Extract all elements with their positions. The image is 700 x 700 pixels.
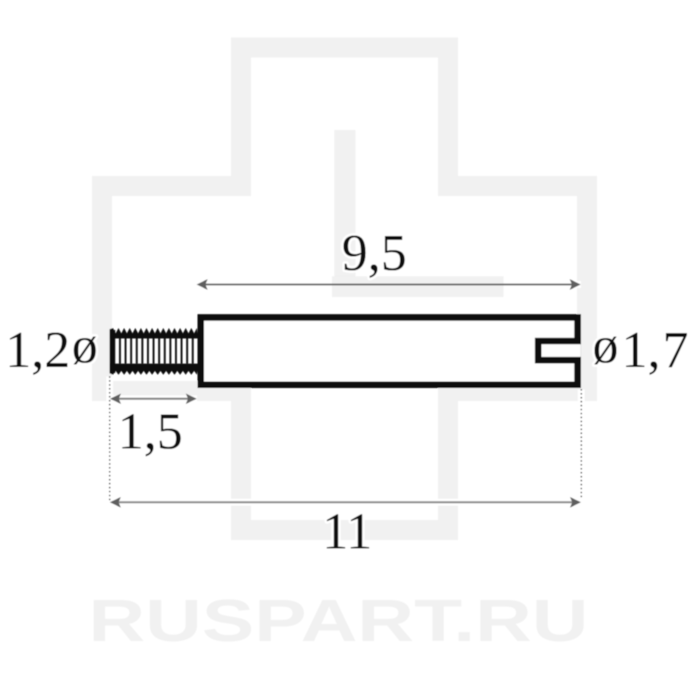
svg-text:1,2ø: 1,2ø: [5, 318, 98, 380]
svg-text:ø1,7: ø1,7: [593, 318, 689, 380]
svg-text:1,5: 1,5: [118, 403, 183, 460]
svg-text:11: 11: [322, 503, 372, 560]
svg-text:9,5: 9,5: [342, 225, 407, 282]
svg-text:RUSPART.RU: RUSPART.RU: [89, 588, 589, 654]
